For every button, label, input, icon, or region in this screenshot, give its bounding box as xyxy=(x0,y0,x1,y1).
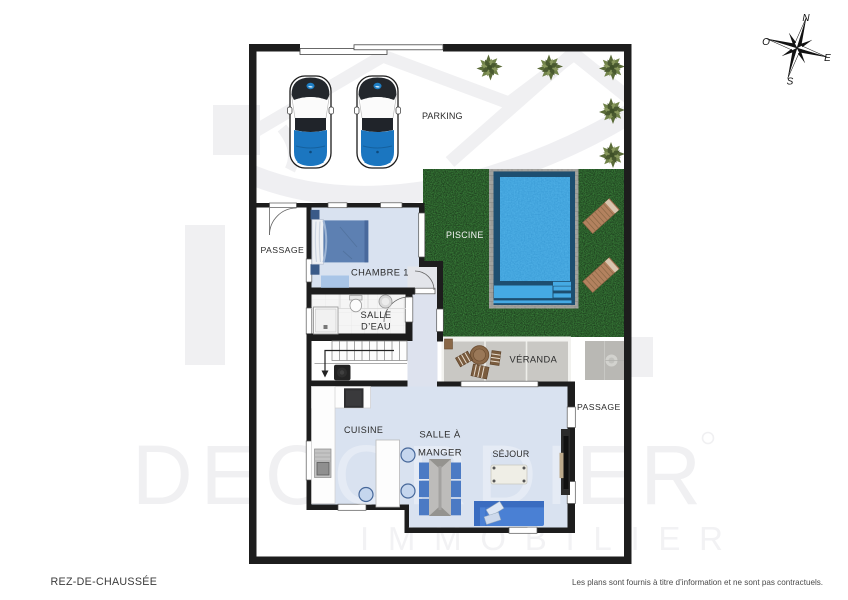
svg-text:PISCINE: PISCINE xyxy=(446,230,484,240)
svg-text:SALLE: SALLE xyxy=(361,310,392,320)
svg-text:S: S xyxy=(787,77,794,88)
svg-text:PASSAGE: PASSAGE xyxy=(577,402,621,412)
svg-text:SÉJOUR: SÉJOUR xyxy=(493,449,530,459)
svg-text:SALLE À: SALLE À xyxy=(419,430,461,441)
svg-text:VÉRANDA: VÉRANDA xyxy=(510,355,558,365)
svg-text:Les plans sont fournis à titre: Les plans sont fournis à titre d’informa… xyxy=(572,578,823,587)
svg-text:N: N xyxy=(802,13,810,24)
svg-text:O: O xyxy=(762,37,770,48)
svg-text:REZ-DE-CHAUSSÉE: REZ-DE-CHAUSSÉE xyxy=(51,575,158,588)
svg-text:E: E xyxy=(824,53,831,64)
svg-text:CUISINE: CUISINE xyxy=(344,425,383,435)
svg-text:D’EAU: D’EAU xyxy=(361,322,391,332)
svg-text:MANGER: MANGER xyxy=(418,448,462,459)
svg-text:PARKING: PARKING xyxy=(422,111,463,121)
svg-text:CHAMBRE 1: CHAMBRE 1 xyxy=(351,268,409,278)
svg-text:PASSAGE: PASSAGE xyxy=(261,245,305,255)
